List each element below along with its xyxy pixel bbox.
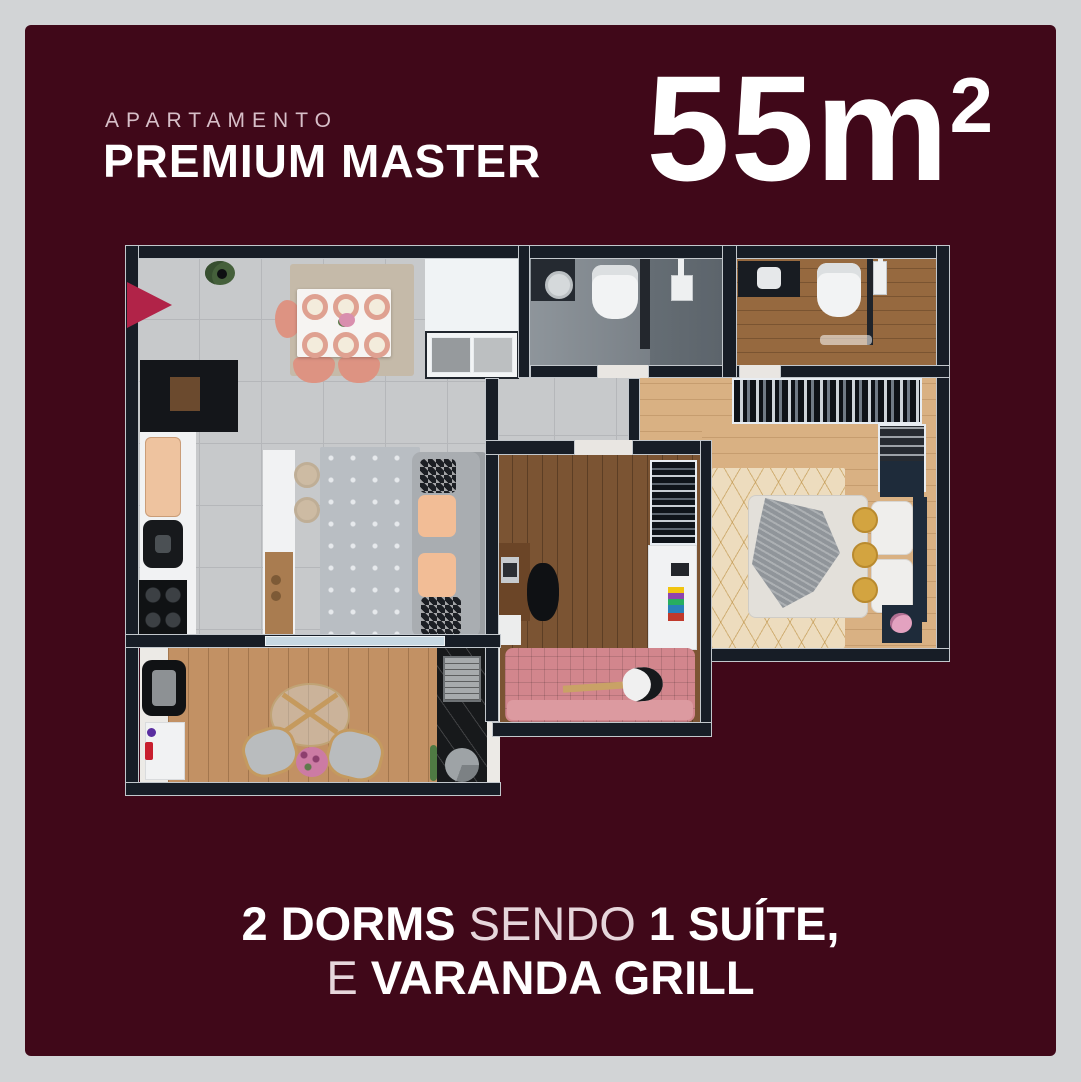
poster-card: APARTAMENTO PREMIUM MASTER 55m2 — [25, 25, 1056, 1056]
wall — [700, 648, 950, 662]
island-item — [271, 575, 281, 585]
closet-clothes-rack — [732, 378, 922, 424]
wall — [485, 440, 575, 455]
cutting-board — [145, 437, 181, 517]
area-value: 55m2 — [646, 53, 994, 203]
sofa-pillow-pattern — [421, 597, 461, 635]
wall — [530, 365, 598, 378]
desk-chair — [527, 563, 559, 621]
varanda-plant — [430, 745, 437, 781]
area-superscript: 2 — [950, 61, 994, 149]
bathroom-divider-wall — [640, 257, 650, 349]
sofa-pillow-peach — [418, 553, 456, 597]
entrance-arrow-icon — [127, 282, 172, 328]
stool — [294, 462, 320, 488]
wardrobe — [650, 460, 697, 545]
apartment-kicker: APARTAMENTO — [105, 109, 338, 133]
shower-zone — [650, 257, 722, 365]
wall — [936, 245, 950, 662]
shower-tray — [671, 275, 693, 301]
dining-chair — [275, 300, 299, 338]
kitchen-shelf — [170, 377, 200, 411]
toilet — [817, 263, 861, 317]
plate — [302, 294, 328, 320]
footer-sendo: SENDO — [469, 897, 636, 951]
bed-headboard — [913, 497, 927, 622]
round-sink — [545, 271, 573, 299]
door-opening — [575, 440, 632, 455]
grill-round-burner — [445, 748, 479, 782]
plate — [302, 332, 328, 358]
sofa-pillow-peach — [418, 495, 456, 537]
wall — [492, 722, 712, 737]
guitar-body — [622, 666, 664, 703]
footer-dorms: 2 DORMS — [242, 897, 456, 951]
sliding-glass-door — [265, 636, 445, 646]
floorplan — [125, 245, 950, 797]
plate — [364, 294, 390, 320]
laundry-door-panel — [431, 337, 471, 373]
footer-varanda: VARANDA GRILL — [371, 951, 755, 1005]
wall — [485, 378, 499, 722]
suite-sink — [757, 267, 781, 289]
flower-pot — [296, 747, 328, 777]
island-item — [271, 591, 281, 601]
plant-pot — [217, 269, 227, 279]
nightstand — [880, 461, 924, 497]
sink-basin — [155, 535, 171, 553]
area-number: 55m — [646, 44, 949, 212]
door-opening — [598, 365, 648, 378]
shower-column — [873, 261, 887, 295]
bed-pillow-gold — [852, 577, 878, 603]
page-title: PREMIUM MASTER — [103, 134, 541, 188]
bed-pillow — [871, 501, 913, 555]
stool — [294, 497, 320, 523]
door-opening — [740, 365, 780, 378]
laundry-door-panel — [473, 337, 513, 373]
wall — [125, 245, 950, 259]
sofa-pillow-pattern — [420, 459, 456, 493]
shelf-camera — [671, 563, 689, 576]
footer-line-2: E VARANDA GRILL — [25, 951, 1056, 1005]
toilet — [592, 265, 638, 319]
room-hall-floor — [492, 373, 628, 448]
wall — [518, 245, 530, 378]
guitar — [562, 661, 673, 712]
footer-line-1: 2 DORMS SENDO 1 SUÍTE, — [25, 897, 1056, 951]
plate — [364, 332, 390, 358]
cleaning-item — [147, 728, 156, 737]
nightstand-flowers — [890, 613, 912, 633]
wall — [628, 378, 640, 448]
wall — [125, 782, 501, 796]
table-centerpiece — [339, 313, 355, 327]
cleaning-item — [145, 742, 153, 760]
bed-pillow-gold — [852, 507, 878, 533]
footer-caption: 2 DORMS SENDO 1 SUÍTE, E VARANDA GRILL — [25, 897, 1056, 1004]
plate — [333, 332, 359, 358]
varanda-sink-basin — [152, 670, 176, 706]
grill — [443, 656, 481, 702]
wall — [722, 245, 737, 378]
guitar-neck — [563, 681, 627, 692]
living-rug — [320, 447, 420, 642]
shelf-books — [668, 587, 684, 621]
footer-e: E — [326, 951, 357, 1005]
footer-suite: 1 SUÍTE, — [649, 897, 840, 951]
laptop-screen — [503, 563, 517, 577]
cooktop — [139, 580, 187, 638]
laundry-niche — [425, 257, 519, 331]
wall — [780, 365, 950, 378]
bath-tray — [820, 335, 872, 345]
wall — [700, 440, 712, 737]
bed-pillow-gold — [852, 542, 878, 568]
